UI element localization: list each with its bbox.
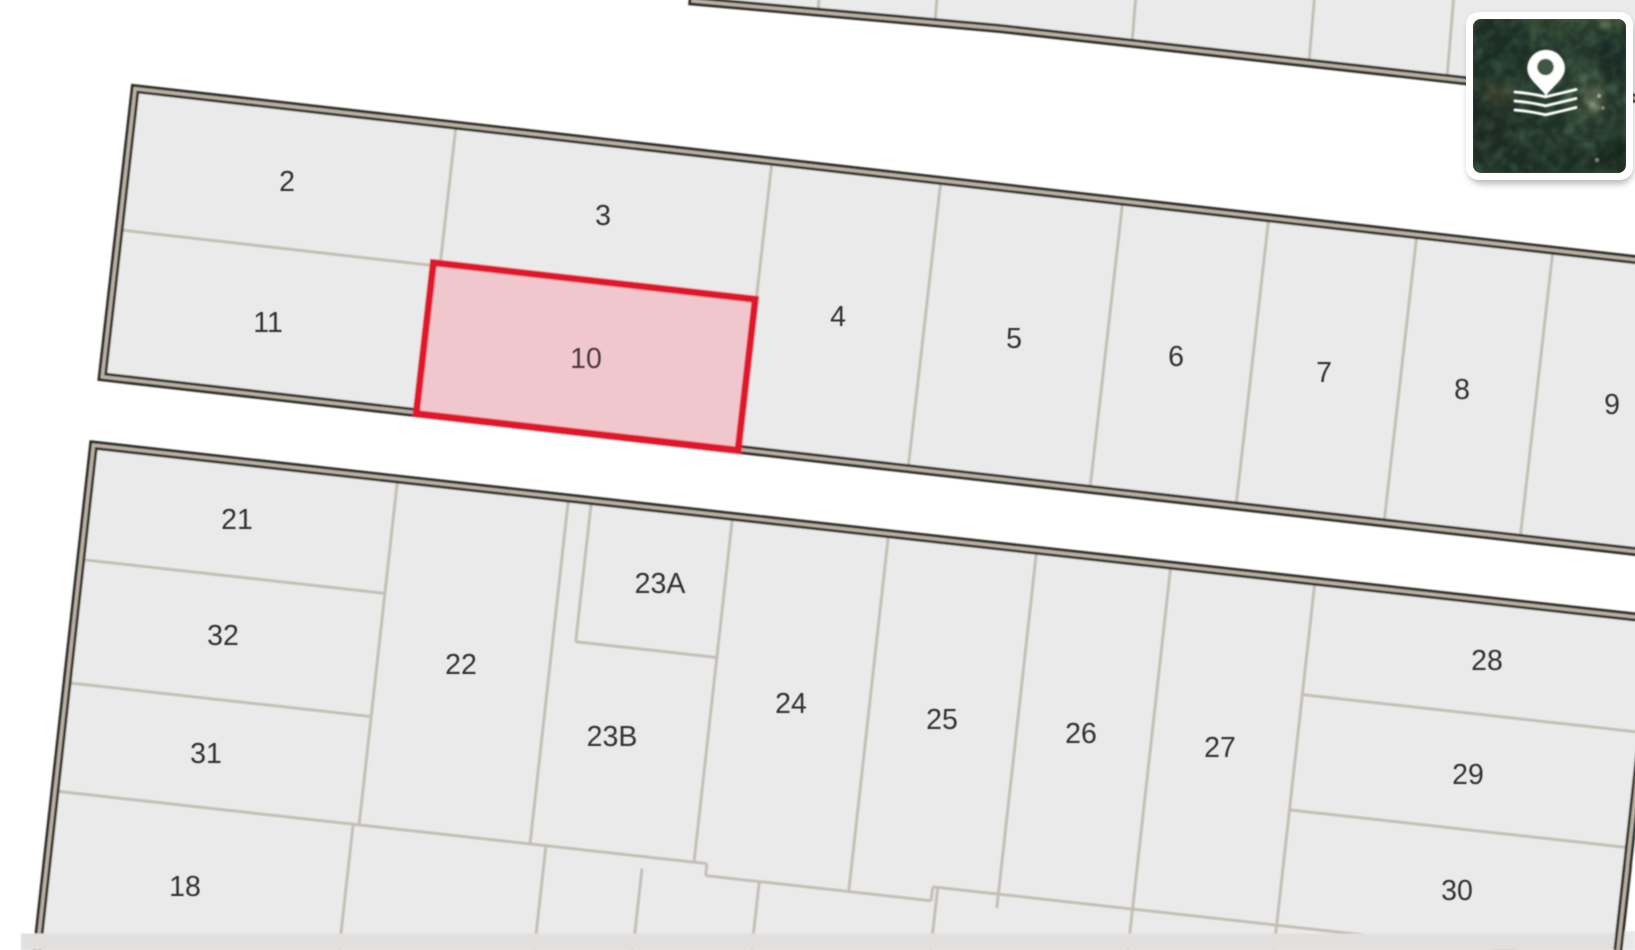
svg-text:24: 24 <box>775 688 807 720</box>
svg-text:23B: 23B <box>587 721 638 753</box>
svg-text:10: 10 <box>570 343 602 375</box>
svg-text:3: 3 <box>595 200 611 232</box>
svg-text:22: 22 <box>445 649 477 681</box>
svg-text:27: 27 <box>1204 732 1236 764</box>
svg-text:30: 30 <box>1441 875 1473 907</box>
svg-text:8: 8 <box>1454 374 1470 406</box>
svg-text:9: 9 <box>1604 389 1620 421</box>
svg-text:5: 5 <box>1006 323 1022 355</box>
svg-text:2: 2 <box>279 166 295 198</box>
svg-text:4: 4 <box>830 301 846 333</box>
svg-text:26: 26 <box>1065 718 1097 750</box>
svg-text:6: 6 <box>1168 341 1184 373</box>
svg-text:29: 29 <box>1452 759 1484 791</box>
svg-text:21: 21 <box>221 504 253 536</box>
svg-text:18: 18 <box>169 871 201 903</box>
svg-text:28: 28 <box>1471 645 1503 677</box>
svg-text:25: 25 <box>926 704 958 736</box>
svg-text:32: 32 <box>207 620 239 652</box>
svg-text:7: 7 <box>1316 357 1332 389</box>
svg-text:11: 11 <box>253 307 283 339</box>
svg-text:31: 31 <box>190 738 222 770</box>
svg-text:23A: 23A <box>635 568 686 600</box>
